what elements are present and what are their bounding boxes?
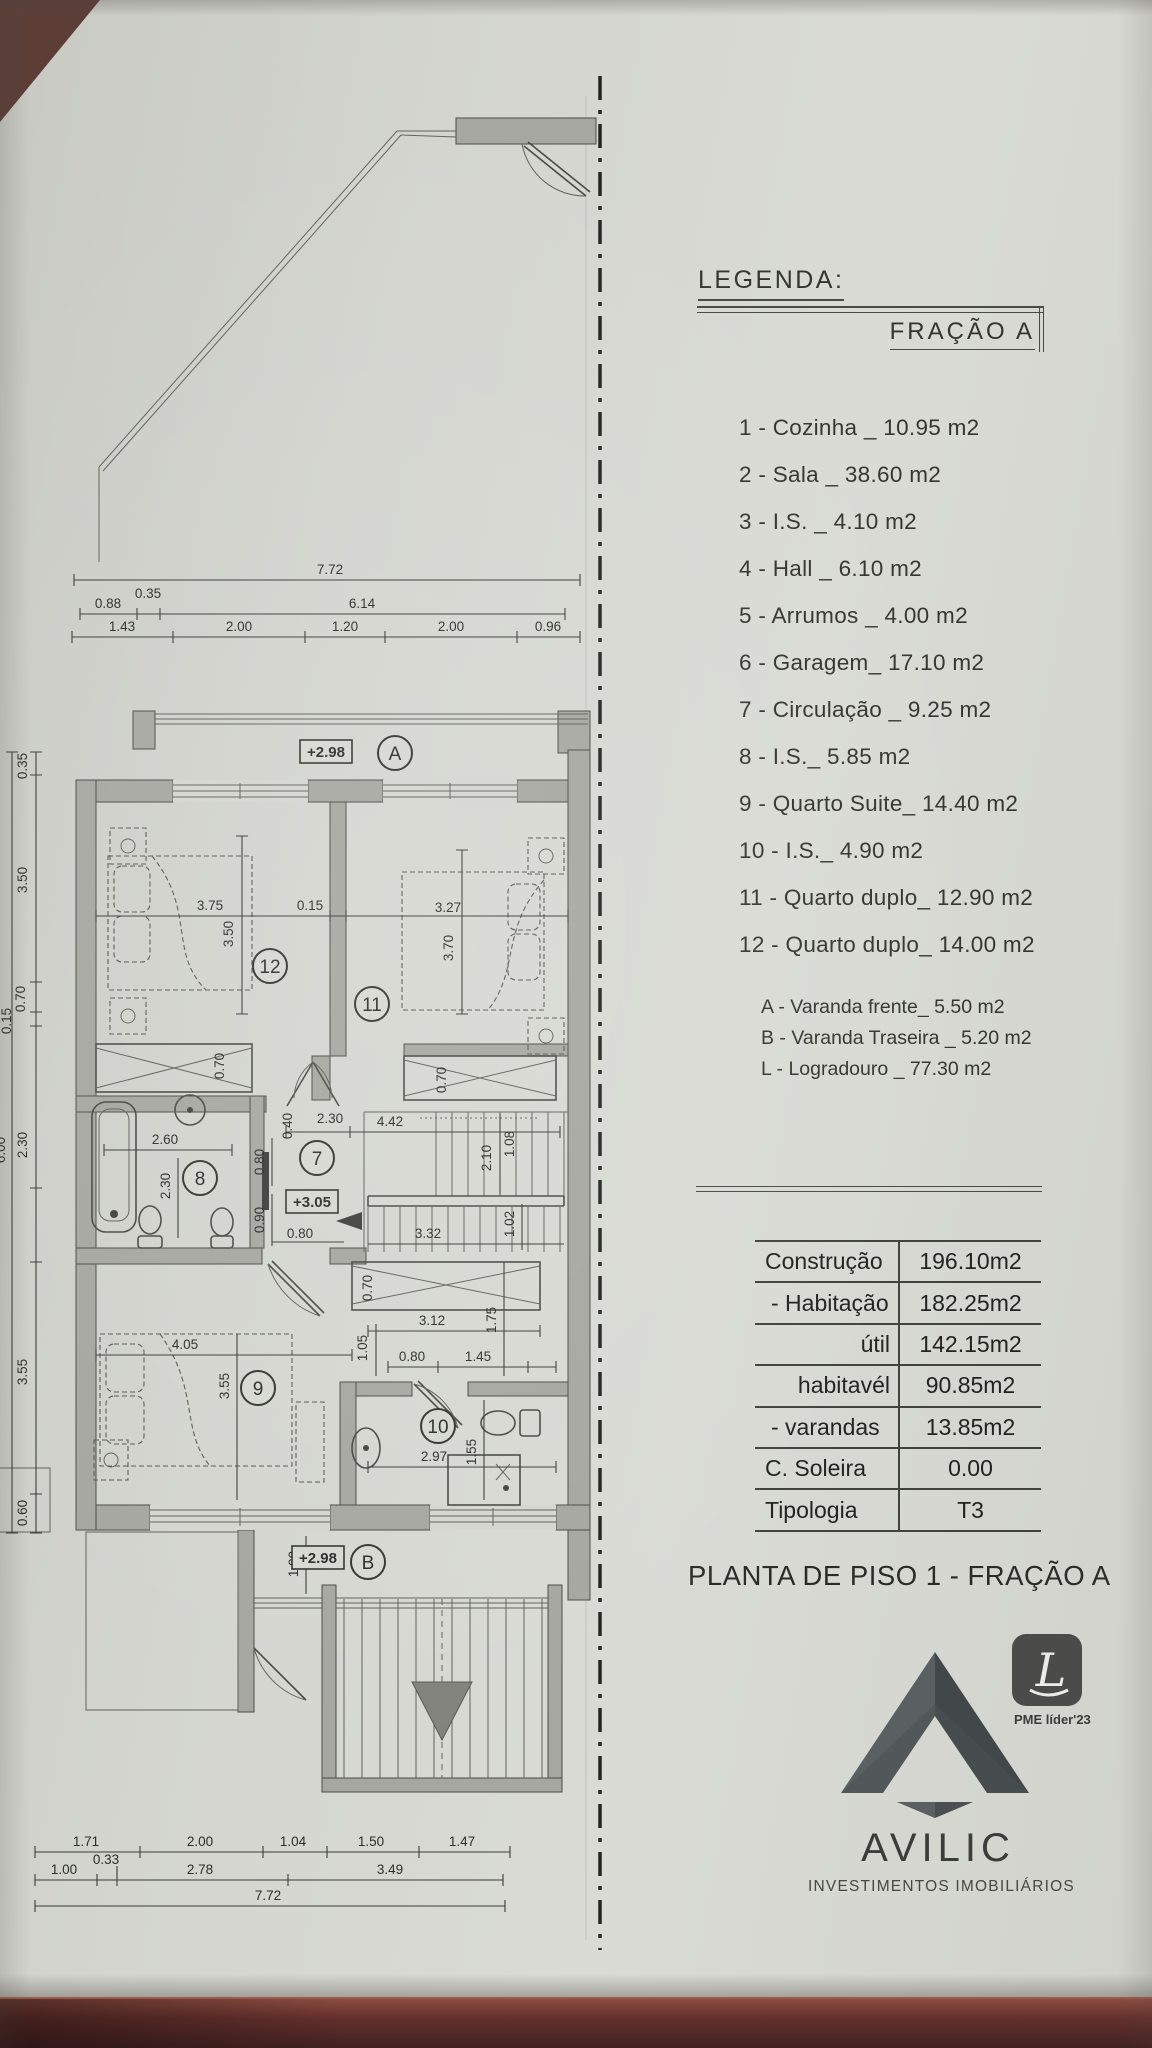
page-title: PLANTA DE PISO 1 - FRAÇÃO A <box>688 1560 1111 1592</box>
legend-title: LEGENDA: <box>698 266 844 301</box>
dim-label: 0.80 <box>252 1149 267 1175</box>
exterior-stair-arrow <box>412 1682 472 1740</box>
dim-label: 1.45 <box>465 1349 491 1364</box>
dim-label: 3.75 <box>197 898 223 913</box>
legend-item: 1 - Cozinha _ 10.95 m2 <box>739 404 1035 451</box>
dim-label: 1.71 <box>73 1834 99 1849</box>
staircase <box>336 1112 568 1252</box>
dim-label: 3.50 <box>15 867 30 893</box>
photo-background-strip <box>0 1997 1152 2048</box>
dimensions-top: 7.72 0.88 0.35 6.14 1.43 2.00 1.20 2.00 … <box>72 562 580 643</box>
table-row-label: útil <box>755 1325 900 1364</box>
table-row: útil 142.15m2 <box>755 1325 1041 1366</box>
table-row-value: 196.10m2 <box>900 1248 1041 1275</box>
room-label: 10 <box>427 1417 448 1438</box>
pme-lider-badge: L PME líder'23 <box>1012 1634 1091 1727</box>
fraction-heading: FRAÇÃO A <box>735 318 1035 350</box>
dim-label: 3.49 <box>377 1862 403 1877</box>
dim-label: 0.80 <box>287 1226 313 1241</box>
legend-item-list: 1 - Cozinha _ 10.95 m2 2 - Sala _ 38.60 … <box>739 404 1035 968</box>
table-row-label: habitavél <box>755 1366 900 1405</box>
dimensions-bottom: 1.71 2.00 1.04 1.50 1.47 1.00 0.33 2.78 … <box>35 1834 510 1912</box>
dim-label: 0.35 <box>15 753 30 779</box>
dim-label: 2.30 <box>158 1173 173 1199</box>
dim-label: 2.30 <box>15 1132 30 1158</box>
legend-item: 8 - I.S._ 5.85 m2 <box>739 733 1035 780</box>
legend-item: 10 - I.S._ 4.90 m2 <box>739 827 1035 874</box>
table-row-value: 182.25m2 <box>900 1290 1041 1317</box>
dim-label: 1.02 <box>502 1211 517 1237</box>
legend-item: 7 - Circulação _ 9.25 m2 <box>739 686 1035 733</box>
dim-label: 0.15 <box>297 898 323 913</box>
dim-label: 0.70 <box>13 986 28 1012</box>
legend-item: 6 - Garagem_ 17.10 m2 <box>739 639 1035 686</box>
level-label: +2.98 <box>299 1550 337 1567</box>
dim-label: 3.55 <box>15 1359 30 1385</box>
legend-item: 5 - Arrumos _ 4.00 m2 <box>739 592 1035 639</box>
stair-direction-arrow <box>336 1212 362 1230</box>
mountain-logo-spout <box>897 1802 935 1818</box>
balcony-b-label: B <box>362 1553 375 1574</box>
scanned-floorplan-page: 7.72 0.88 0.35 6.14 1.43 2.00 1.20 2.00 … <box>0 0 1152 2048</box>
dimensions-left: 0.35 3.50 0.70 0.15 2.30 3.55 0.60 6.00 <box>0 752 42 1533</box>
room-markers: 12 11 7 8 9 10 A B <box>183 736 455 1579</box>
dim-label: 1.20 <box>332 619 358 634</box>
dim-label: 4.05 <box>172 1337 198 1352</box>
dim-label: 0.80 <box>399 1349 425 1364</box>
table-row-value: T3 <box>900 1497 1041 1524</box>
logo-graphics: L PME líder'23 <box>808 1630 1108 1820</box>
dim-label: 1.00 <box>51 1862 77 1877</box>
dim-label: 0.70 <box>434 1067 449 1093</box>
table-row-value: 90.85m2 <box>900 1372 1041 1399</box>
table-row: - Habitação 182.25m2 <box>755 1283 1041 1324</box>
dim-label: 2.97 <box>421 1449 447 1464</box>
level-label: +2.98 <box>307 744 345 761</box>
dim-label: 0.88 <box>95 596 121 611</box>
site-boundary <box>99 118 596 562</box>
dimensions-stairs: 2.10 1.08 1.02 3.32 <box>368 1114 564 1250</box>
table-row-label: C. Soleira <box>755 1449 900 1488</box>
dim-label: 1.75 <box>484 1307 499 1333</box>
dim-label: 0.70 <box>212 1053 227 1079</box>
exterior-staircase <box>322 1585 562 1792</box>
brand-tagline: INVESTIMENTOS IMOBILIÁRIOS <box>808 1878 1072 1896</box>
dim-label: 7.72 <box>255 1888 281 1903</box>
dim-label: 4.42 <box>377 1114 403 1129</box>
legend-item: 2 - Sala _ 38.60 m2 <box>739 451 1035 498</box>
dim-label: 3.32 <box>415 1226 441 1241</box>
dim-label: 1.55 <box>464 1439 479 1465</box>
room-label: 8 <box>195 1169 206 1190</box>
table-row-value: 13.85m2 <box>900 1414 1041 1441</box>
room-label: 7 <box>312 1149 323 1170</box>
dim-label: 1.43 <box>109 619 135 634</box>
dim-label: 2.10 <box>479 1145 494 1171</box>
brand-name: AVILIC <box>828 1826 1048 1871</box>
balcony-a-railing <box>155 714 588 724</box>
table-row-value: 0.00 <box>900 1455 1041 1482</box>
badge-caption: PME líder'23 <box>1014 1712 1091 1727</box>
legend-item: 11 - Quarto duplo_ 12.90 m2 <box>739 874 1035 921</box>
dim-label: 6.14 <box>349 596 376 611</box>
dim-label: 2.30 <box>317 1111 343 1126</box>
dim-label: 1.50 <box>358 1834 384 1849</box>
legend-extra-item: B - Varanda Traseira _ 5.20 m2 <box>761 1023 1032 1054</box>
dim-label: 0.70 <box>360 1275 375 1301</box>
table-row-label: Construção <box>755 1242 900 1281</box>
dim-label: 0.33 <box>93 1852 119 1867</box>
table-row-value: 142.15m2 <box>900 1331 1041 1358</box>
dim-label: 2.60 <box>152 1132 178 1147</box>
dim-label: 1.47 <box>449 1834 475 1849</box>
legend-extra-list: A - Varanda frente_ 5.50 m2 B - Varanda … <box>761 992 1032 1085</box>
dim-label: 1.04 <box>280 1834 307 1849</box>
dim-label: 0.40 <box>280 1113 295 1139</box>
dim-label: 2.00 <box>187 1834 213 1849</box>
balcony-a-label: A <box>389 744 402 765</box>
dim-label: 3.55 <box>217 1373 232 1399</box>
dim-label: 2.78 <box>187 1862 213 1877</box>
badge-letter: L <box>1035 1643 1067 1697</box>
dim-label: 0.15 <box>0 1008 14 1034</box>
dim-label: 3.70 <box>441 935 456 961</box>
legend-extra-item: A - Varanda frente_ 5.50 m2 <box>761 992 1032 1023</box>
dim-label: 1.08 <box>502 1131 517 1157</box>
table-row: Construção 196.10m2 <box>755 1242 1041 1283</box>
dim-label: 0.35 <box>135 586 161 601</box>
dim-label: 3.12 <box>419 1313 445 1328</box>
table-row: habitavél 90.85m2 <box>755 1366 1041 1407</box>
dim-label: 2.00 <box>226 619 252 634</box>
dim-label: 0.96 <box>535 619 561 634</box>
fraction-heading-text: FRAÇÃO A <box>890 318 1035 350</box>
balcony-b-railing <box>254 1598 560 1608</box>
dim-label: 1.05 <box>355 1335 370 1361</box>
table-row-label: Tipologia <box>755 1490 900 1529</box>
room-label: 11 <box>362 995 382 1016</box>
table-row: C. Soleira 0.00 <box>755 1449 1041 1490</box>
dim-label: 6.00 <box>0 1137 8 1163</box>
dim-label: 7.72 <box>317 562 343 577</box>
table-row-label: - varandas <box>755 1408 900 1447</box>
table-row-label: - Habitação <box>755 1283 900 1322</box>
paper-edge-shadow <box>0 1974 1152 1998</box>
dim-label: 0.90 <box>252 1207 267 1233</box>
dim-label: 0.60 <box>15 1500 30 1526</box>
areas-table: Construção 196.10m2 - Habitação 182.25m2… <box>755 1240 1041 1532</box>
doors <box>254 1062 462 1700</box>
table-row: - varandas 13.85m2 <box>755 1408 1041 1449</box>
level-label: +3.05 <box>293 1194 331 1211</box>
room-label: 12 <box>259 957 280 978</box>
legend-extra-item: L - Logradouro _ 77.30 m2 <box>761 1054 1032 1085</box>
legend-item: 4 - Hall _ 6.10 m2 <box>739 545 1035 592</box>
dim-label: 2.00 <box>438 619 464 634</box>
company-logo: L PME líder'23 AVILIC INVESTIMENTOS IMOB… <box>808 1630 1108 1920</box>
dim-label: 3.27 <box>435 900 461 915</box>
legend-item: 9 - Quarto Suite_ 14.40 m2 <box>739 780 1035 827</box>
legend-item: 3 - I.S. _ 4.10 m2 <box>739 498 1035 545</box>
table-row: Tipologia T3 <box>755 1490 1041 1529</box>
mountain-logo-icon <box>841 1652 1029 1818</box>
room-label: 9 <box>253 1379 264 1400</box>
dim-label: 3.50 <box>221 921 236 947</box>
legend-item: 12 - Quarto duplo_ 14.00 m2 <box>739 921 1035 968</box>
